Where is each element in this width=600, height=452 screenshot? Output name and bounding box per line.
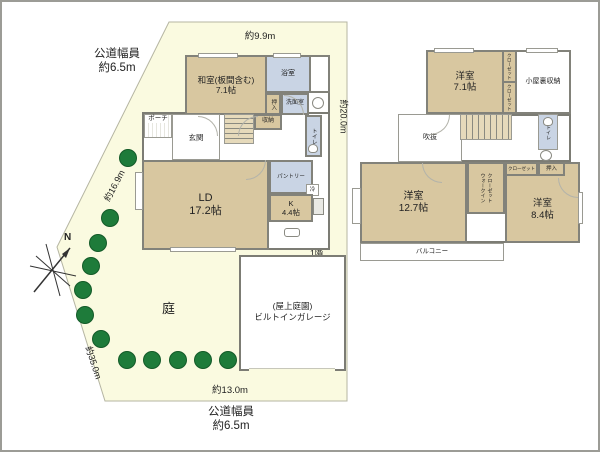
stove-icon <box>313 198 324 215</box>
washitsu-size: 7.1帖 <box>198 85 255 95</box>
window <box>578 192 583 224</box>
ld-size: 17.2帖 <box>189 205 221 218</box>
yoshitsu2-size: 12.7帖 <box>399 203 428 215</box>
closet-b-label: クローゼット <box>507 84 512 111</box>
bath-label: 浴室 <box>281 70 295 78</box>
shuno-label: 収納 <box>262 118 274 125</box>
kitchen-name: K <box>282 199 300 208</box>
garage-label-line1: (屋上庭園) <box>241 301 344 312</box>
tree-icon <box>82 257 100 275</box>
fridge-label: 冷 <box>310 187 316 194</box>
room-washitsu: 和室(板間含む) 7.1帖 <box>185 55 267 115</box>
tree-icon <box>89 234 107 252</box>
yoshitsu3-name: 洋室 <box>531 198 554 209</box>
road-width-label-bottom: 公道幅員 約6.5m <box>196 405 266 433</box>
road-width-top-line1: 公道幅員 <box>82 47 152 61</box>
bay-window <box>135 172 143 210</box>
room-utility-cell <box>309 55 330 93</box>
sink-icon-1f <box>284 228 300 237</box>
room-oshiire-2f: 押入 <box>538 162 565 176</box>
washitsu-name: 和室(板間含む) <box>198 75 255 85</box>
dimension-bottom: 約13.0m <box>202 382 258 396</box>
room-kitchen: K 4.4帖 <box>269 194 313 222</box>
dimension-right: 約20.0m <box>338 93 351 141</box>
road-width-bottom-line2: 約6.5m <box>196 419 266 433</box>
room-yoshitsu-2: 洋室 12.7帖 <box>360 162 467 243</box>
wic-label-line2: クローゼット <box>487 173 493 203</box>
tree-icon <box>76 306 94 324</box>
tree-icon <box>118 351 136 369</box>
tree-icon <box>219 351 237 369</box>
tree-icon <box>74 281 92 299</box>
oshiire-2f-label: 押入 <box>546 166 557 173</box>
yoshitsu3-size: 8.4帖 <box>531 210 554 221</box>
balcony-label: バルコニー <box>416 248 448 256</box>
walk-in-closet: ウォークイン クローゼット <box>467 162 505 214</box>
compass-north-label: N <box>64 232 71 243</box>
oshiire-1f-label: 押入 <box>270 99 277 110</box>
road-width-label-top: 公道幅員 約6.5m <box>82 47 152 75</box>
road-width-bottom-line1: 公道幅員 <box>196 405 266 419</box>
balcony: バルコニー <box>360 243 504 261</box>
tree-icon <box>194 351 212 369</box>
floorplan-canvas: N 公道幅員 約6.5m 公道幅員 約6.5m 約9.9m 約13.0m 約20… <box>0 0 600 452</box>
yoshitsu2-name: 洋室 <box>399 191 428 203</box>
dimension-top: 約9.9m <box>232 28 288 42</box>
room-oshiire-1f: 押入 <box>265 93 281 115</box>
toilet-2f-label: トイレ <box>545 125 551 140</box>
wic-label-line1: ウォークイン <box>480 173 486 203</box>
stairs-2f <box>460 114 512 140</box>
room-yoshitsu-1: 洋室 7.1帖 <box>426 50 504 114</box>
void-label: 吹抜 <box>423 134 437 142</box>
pantry-label: パントリー <box>277 174 305 181</box>
window <box>170 247 236 252</box>
kitchen-size: 4.4帖 <box>282 208 300 217</box>
window <box>526 48 558 53</box>
closet-c-label: クローゼット <box>508 166 535 171</box>
road-width-top-line2: 約6.5m <box>82 61 152 75</box>
garage-label-line2: ビルトインガレージ <box>241 312 344 323</box>
bay-window-2f <box>352 188 361 224</box>
sink-icon-2f <box>540 150 552 161</box>
tree-icon <box>169 351 187 369</box>
attic-label: 小屋裏収納 <box>526 78 561 86</box>
toilet-1f-label: トイレ <box>310 128 317 145</box>
room-attic-storage: 小屋裏収納 <box>515 50 571 114</box>
toilet-icon-2f <box>543 117 553 126</box>
closet-a-label: クローゼット <box>507 53 512 80</box>
basin-icon <box>312 97 324 109</box>
porch-label: ポーチ <box>148 115 168 123</box>
yoshitsu1-name: 洋室 <box>454 71 477 82</box>
room-shuno: 収納 <box>254 114 282 130</box>
window <box>198 53 238 58</box>
window <box>273 53 301 58</box>
genkan: 玄関 <box>172 114 220 160</box>
ld-name: LD <box>189 192 221 205</box>
yoshitsu1-size: 7.1帖 <box>454 82 477 93</box>
garage: (屋上庭園) ビルトインガレージ <box>239 255 346 371</box>
garden-label: 庭 <box>162 298 175 317</box>
tree-icon <box>101 209 119 227</box>
toilet-icon-1f <box>308 144 318 153</box>
tree-icon <box>143 351 161 369</box>
closet-c: クローゼット <box>505 162 538 176</box>
room-bath: 浴室 <box>265 55 311 93</box>
porch: ポーチ <box>144 114 172 138</box>
garage-opening <box>249 368 335 373</box>
window <box>434 48 474 53</box>
